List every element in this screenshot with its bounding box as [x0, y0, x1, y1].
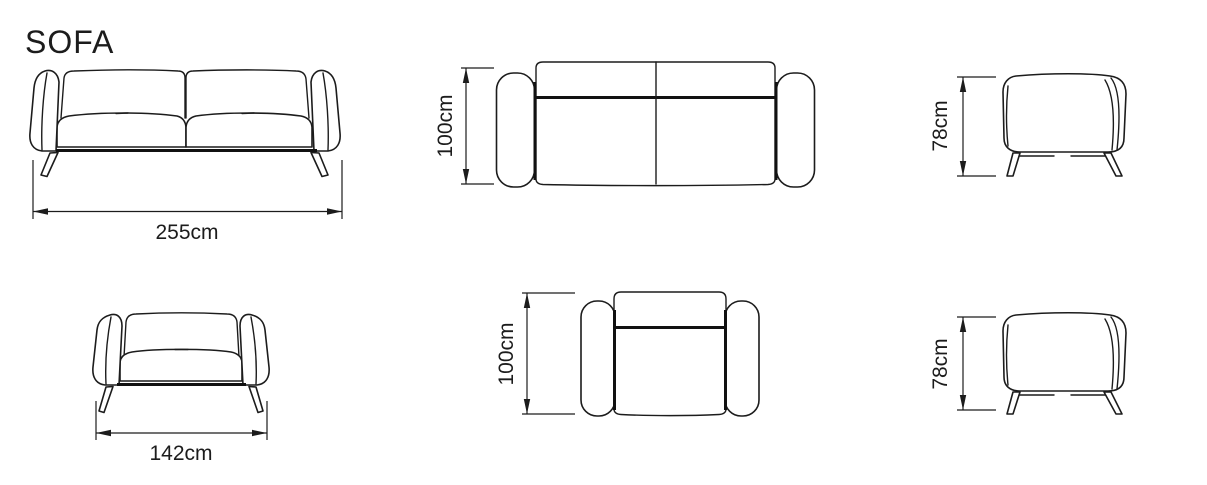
sofa-depth-dimension — [461, 68, 494, 184]
armchair-height-dimension — [957, 317, 996, 410]
sofa-height-label: 78cm — [929, 100, 953, 151]
sofa-side-view-drawing — [1003, 74, 1126, 176]
sofa-top-view-drawing — [497, 62, 815, 187]
armchair-width-label: 142cm — [149, 442, 212, 466]
armchair-top-view-drawing — [581, 292, 759, 416]
armchair-side-view-drawing — [1003, 313, 1126, 414]
sofa-depth-label: 100cm — [434, 94, 458, 157]
sofa-width-dimension — [33, 160, 342, 219]
sofa-dimension-sheet: SOFA — [0, 0, 1207, 485]
armchair-front-view-drawing — [93, 313, 269, 413]
sofa-width-label: 255cm — [155, 221, 218, 245]
armchair-depth-dimension — [522, 293, 575, 414]
armchair-height-label: 78cm — [929, 338, 953, 389]
sofa-height-dimension — [957, 77, 996, 176]
armchair-depth-label: 100cm — [495, 322, 519, 385]
sofa-front-view-drawing — [30, 70, 340, 177]
armchair-width-dimension — [96, 401, 267, 440]
